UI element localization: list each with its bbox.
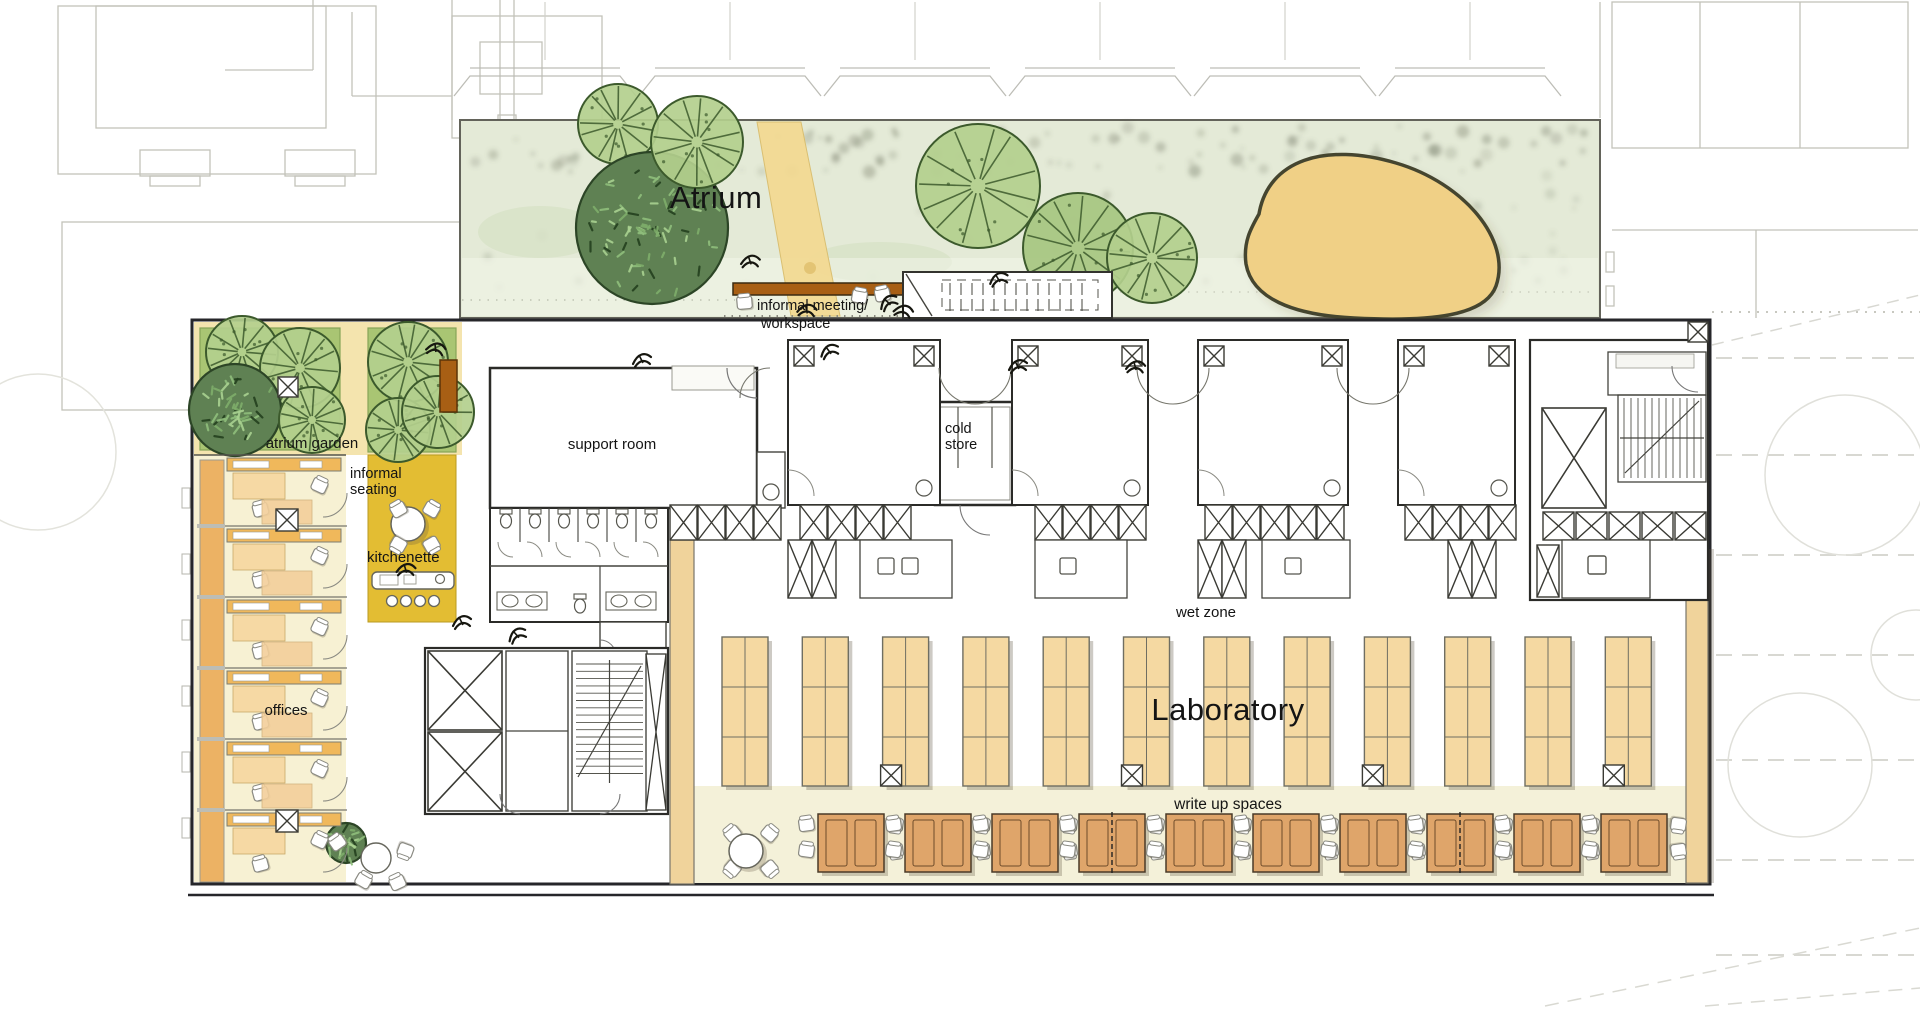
desk-monitor: [300, 745, 322, 752]
tree-icon: [651, 96, 743, 188]
desk-monitor: [233, 745, 269, 752]
cold-store-label-2: store: [945, 437, 977, 453]
context-outline: [96, 6, 326, 128]
office-return-desk: [233, 757, 285, 783]
kitchenette-label: kitchenette: [367, 549, 440, 566]
context-outline: [1612, 2, 1908, 148]
window-bay: [1009, 76, 1191, 96]
context-detail: [295, 176, 345, 186]
stool: [429, 596, 440, 607]
write-up-round-table: [729, 834, 763, 868]
toilet-icon: [645, 509, 657, 528]
office-return-desk: [233, 473, 285, 499]
write-up-spaces-label: write up spaces: [1173, 796, 1282, 813]
band-joint: [197, 595, 225, 599]
band-joint: [197, 524, 225, 528]
tree-icon: [916, 124, 1040, 248]
wet-zone-label: wet zone: [1175, 604, 1236, 621]
write-up-desk: [818, 814, 884, 872]
band-joint: [197, 737, 225, 741]
context-detail: [1606, 252, 1614, 272]
office-return-desk: [233, 544, 285, 570]
context-detail: [150, 176, 200, 186]
window-mullion: [182, 554, 190, 574]
window-bay: [1194, 76, 1376, 96]
desk-monitor: [233, 816, 269, 823]
floor-plan-drawing: Atrium informal meeting/ workspace atriu…: [0, 0, 1920, 1010]
support-room-label: support room: [568, 436, 656, 453]
central-core: [425, 648, 668, 814]
context-outline: [58, 6, 376, 174]
right-core-window: [1616, 354, 1694, 368]
lab-strip-left: [670, 540, 694, 884]
write-up-desk: [1253, 814, 1319, 872]
offices-label: offices: [264, 702, 307, 719]
write-up-desks: [720, 812, 1687, 881]
site-dash-line: [1545, 928, 1920, 1006]
stool: [401, 596, 412, 607]
write-up-desk: [1340, 814, 1406, 872]
tree-icon: [402, 376, 474, 448]
chair: [1581, 841, 1600, 860]
window-mullion: [182, 752, 190, 772]
garden-bench: [440, 360, 457, 412]
desk-monitor: [300, 603, 322, 610]
window-mullion: [182, 620, 190, 640]
stool: [387, 596, 398, 607]
window-mullion: [182, 488, 190, 508]
atrium-label: Atrium: [670, 180, 763, 215]
tree-icon: [1107, 213, 1197, 303]
office-side-desk: [262, 571, 312, 595]
write-up-desk: [905, 814, 971, 872]
office-return-desk: [233, 615, 285, 641]
building-spine-window-bays: [454, 2, 1561, 96]
site-dash-line: [1705, 988, 1920, 1006]
wet-zone-equip-room: [1262, 540, 1350, 598]
desk-monitor: [300, 816, 322, 823]
window-bay: [1379, 76, 1561, 96]
bridge-deck: [903, 272, 1112, 318]
toilet-icon: [529, 509, 541, 528]
toilet-icon: [587, 509, 599, 528]
toilet-icon: [616, 509, 628, 528]
toilet-icon: [500, 509, 512, 528]
site-dash-line: [1712, 295, 1920, 345]
band-joint: [197, 808, 225, 812]
chair: [1494, 841, 1513, 860]
sink-counter: [606, 592, 656, 610]
equipment-box: [1588, 556, 1606, 574]
right-core: [1530, 322, 1708, 600]
floor-plan-page: Atrium informal meeting/ workspace atriu…: [0, 0, 1920, 1010]
toilet-icon: [574, 594, 586, 613]
equipment-box: [878, 558, 894, 574]
toilet-icon: [558, 509, 570, 528]
cold-store-walls: [935, 402, 1015, 505]
desk-monitor: [300, 674, 322, 681]
informal-seating-label-1: informal: [350, 466, 402, 482]
chair: [885, 841, 904, 860]
desk-monitor: [233, 674, 269, 681]
office-wall-band: [200, 460, 224, 882]
informal-seating-label-2: seating: [350, 482, 397, 498]
desk-monitor: [233, 532, 269, 539]
atrium-bridge: [903, 272, 1112, 318]
office-side-desk: [262, 642, 312, 666]
chair: [972, 841, 991, 860]
sink-counter: [497, 592, 547, 610]
window-mullion: [182, 818, 190, 838]
window-mullion: [182, 686, 190, 706]
write-up-desk: [1514, 814, 1580, 872]
context-circle: [0, 374, 116, 530]
desk-monitor: [300, 532, 322, 539]
stool: [415, 596, 426, 607]
window-bay: [824, 76, 1006, 96]
desk-monitor: [233, 461, 269, 468]
chair: [1059, 841, 1078, 860]
atrium-garden-label: atrium garden: [266, 435, 359, 452]
site-tree-circle: [1765, 395, 1920, 555]
context-outline: [140, 150, 210, 176]
office-side-desk: [262, 784, 312, 808]
write-up-desk: [1601, 814, 1667, 872]
cold-store-label-1: cold: [945, 421, 972, 437]
write-up-desk: [992, 814, 1058, 872]
chair: [798, 841, 817, 860]
desk-monitor: [233, 603, 269, 610]
chair: [1320, 841, 1339, 860]
chair: [1233, 841, 1252, 860]
chair: [1668, 815, 1687, 834]
site-tree-circle: [1728, 693, 1872, 837]
laboratory-label: Laboratory: [1151, 692, 1304, 727]
equipment-box: [902, 558, 918, 574]
path-marker: [804, 262, 816, 274]
context-outline: [285, 150, 355, 176]
window-bay: [639, 76, 821, 96]
band-joint: [197, 666, 225, 670]
chair: [1407, 841, 1426, 860]
equipment-box: [1060, 558, 1076, 574]
corner-table: [361, 843, 391, 873]
context-detail: [1606, 286, 1614, 306]
equipment-box: [1285, 558, 1301, 574]
write-up-desk: [1166, 814, 1232, 872]
informal-meeting-label-2: workspace: [760, 316, 830, 332]
wet-zone-equip-room: [1035, 540, 1127, 598]
chair: [1146, 841, 1165, 860]
informal-meeting-label-1: informal meeting/: [757, 298, 869, 314]
desk-monitor: [300, 461, 322, 468]
